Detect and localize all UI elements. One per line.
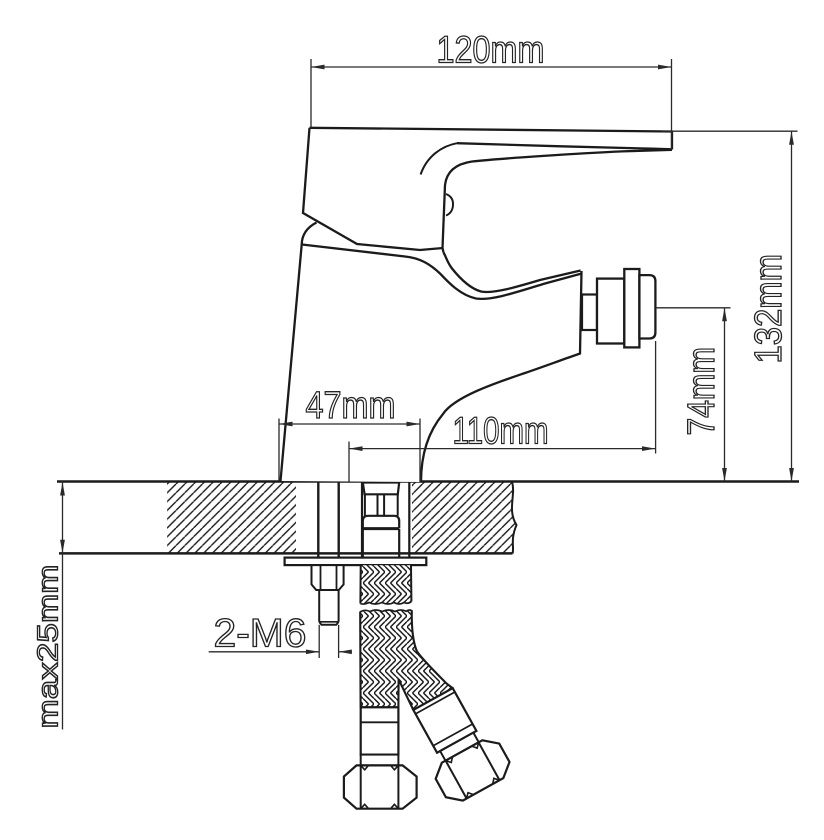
svg-text:132mm: 132mm (748, 254, 790, 364)
svg-text:2-M6: 2-M6 (214, 612, 307, 656)
svg-text:74mm: 74mm (681, 347, 723, 436)
svg-text:110mm: 110mm (453, 411, 549, 453)
svg-text:max25mm: max25mm (33, 565, 65, 729)
svg-text:120mm: 120mm (437, 30, 545, 72)
svg-text:47mm: 47mm (306, 385, 396, 427)
